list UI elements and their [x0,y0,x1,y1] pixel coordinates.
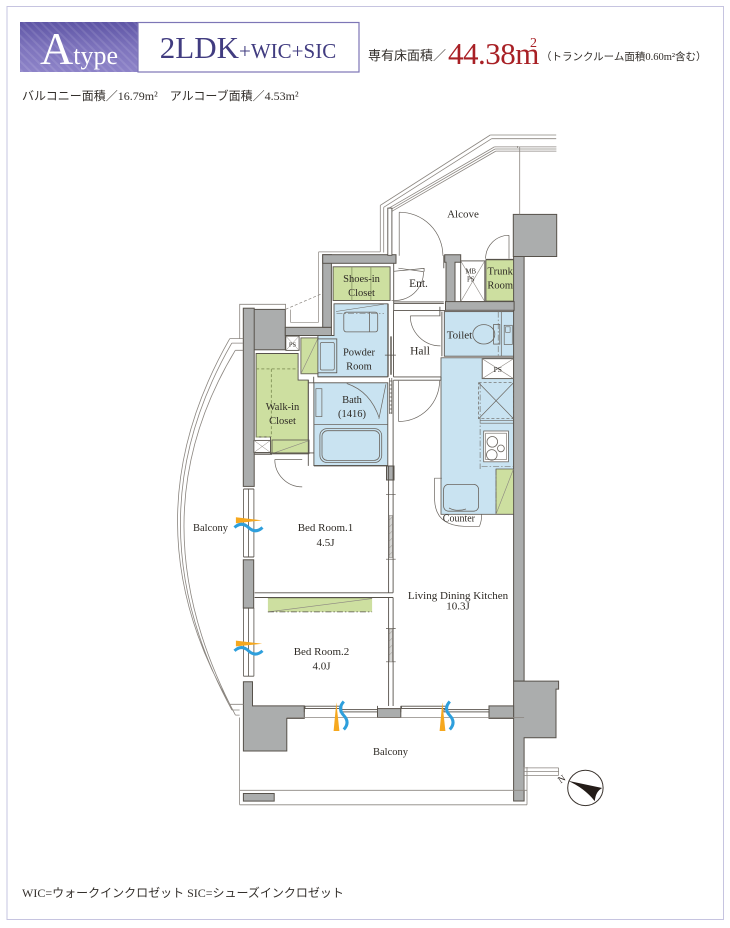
svg-text:Balcony: Balcony [373,747,409,758]
svg-text:PS: PS [467,277,475,284]
svg-text:Toilet: Toilet [447,330,473,342]
svg-text:Bed Room.2: Bed Room.2 [294,646,350,658]
svg-text:（トランクルーム面積0.60m²含む）: （トランクルーム面積0.60m²含む） [541,50,707,63]
svg-text:WIC=ウォークインクロゼット SIC=シューズインクロゼッ: WIC=ウォークインクロゼット SIC=シューズインクロゼット [22,885,344,900]
svg-text:Hall: Hall [410,346,430,358]
svg-text:10.3J: 10.3J [446,601,470,613]
svg-text:バルコニー面積／16.79m² アルコーブ面積／4.53m²: バルコニー面積／16.79m² アルコーブ面積／4.53m² [22,88,299,103]
svg-text:4.0J: 4.0J [312,661,331,673]
svg-text:Closet: Closet [269,416,296,427]
svg-text:Room: Room [487,281,513,292]
svg-text:Walk-in: Walk-in [266,402,300,413]
svg-text:Trunk: Trunk [488,267,514,278]
svg-text:Bed Room.1: Bed Room.1 [298,522,354,534]
svg-text:(1416): (1416) [338,409,366,420]
svg-text:Shoes-in: Shoes-in [343,274,381,285]
svg-text:専有床面積／: 専有床面積／ [368,48,446,63]
svg-text:2: 2 [530,36,537,51]
svg-text:44.38m: 44.38m [448,36,539,71]
svg-text:PS: PS [494,365,502,374]
svg-text:Counter: Counter [443,514,476,525]
svg-text:Room: Room [346,362,372,373]
svg-text:Balcony: Balcony [193,523,229,534]
svg-text:4.5J: 4.5J [316,537,335,549]
svg-text:Ent.: Ent. [409,278,428,290]
svg-text:PS: PS [289,342,297,349]
svg-text:Bath: Bath [342,395,363,406]
svg-text:Powder: Powder [343,348,376,359]
svg-text:Alcove: Alcove [447,209,479,221]
svg-text:MB: MB [466,269,477,276]
svg-text:Closet: Closet [348,288,375,299]
